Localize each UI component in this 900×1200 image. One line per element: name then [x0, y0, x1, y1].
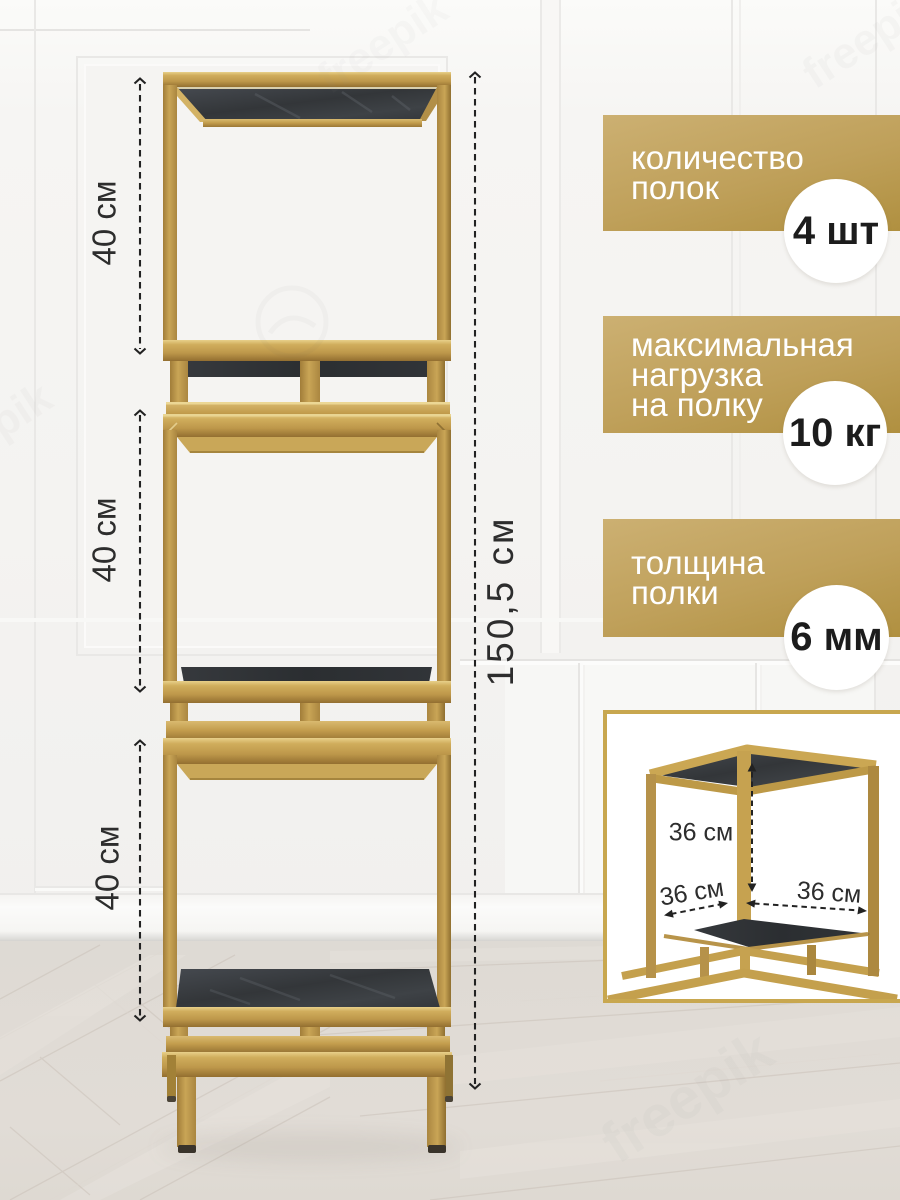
svg-text:36 см: 36 см — [669, 819, 733, 847]
svg-text:freepik: freepik — [794, 0, 900, 98]
svg-text:36 см: 36 см — [796, 876, 862, 908]
svg-text:40 см: 40 см — [89, 825, 126, 910]
svg-text:freepik: freepik — [590, 1017, 786, 1176]
svg-text:pik: pik — [0, 372, 61, 448]
svg-text:150,5 см: 150,5 см — [480, 516, 521, 687]
svg-text:40 см: 40 см — [86, 180, 123, 265]
svg-text:36 см: 36 см — [658, 874, 726, 912]
svg-text:40 см: 40 см — [86, 497, 123, 582]
